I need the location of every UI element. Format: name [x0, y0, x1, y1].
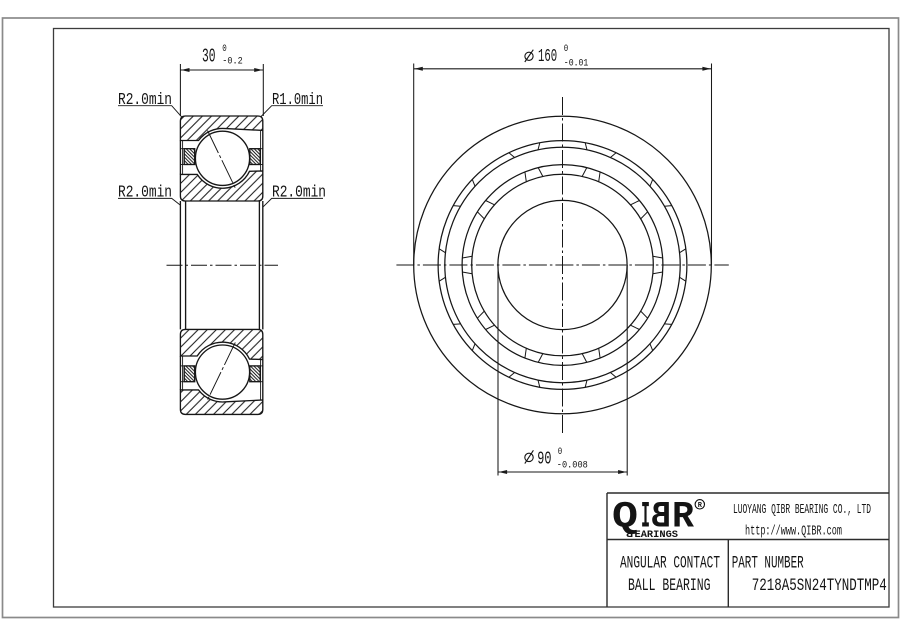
svg-text:ANGULAR CONTACT: ANGULAR CONTACT: [620, 554, 720, 574]
svg-text:30: 30: [202, 46, 216, 68]
svg-text:0: 0: [222, 43, 227, 55]
svg-text:0: 0: [564, 43, 569, 55]
svg-text:EARINGS: EARINGS: [635, 530, 679, 541]
svg-text:R2.0min: R2.0min: [272, 184, 326, 203]
svg-text:R2.0min: R2.0min: [118, 184, 172, 203]
svg-text:-0.008: -0.008: [557, 459, 588, 471]
svg-text:http://www.QIBR.com: http://www.QIBR.com: [745, 524, 842, 540]
svg-text:B: B: [626, 530, 633, 541]
svg-text:R2.0min: R2.0min: [118, 91, 172, 110]
svg-text:-0.01: -0.01: [564, 58, 589, 70]
svg-text:90: 90: [537, 449, 551, 470]
svg-text:PART NUMBER: PART NUMBER: [732, 554, 804, 574]
svg-text:-0.2: -0.2: [222, 55, 243, 67]
svg-text:R1.0min: R1.0min: [272, 91, 323, 110]
svg-text:LUOYANG QIBR BEARING CO., LTD: LUOYANG QIBR BEARING CO., LTD: [733, 502, 871, 518]
svg-text:0: 0: [558, 446, 563, 458]
svg-text:7218A5SN24TYNDTMP4: 7218A5SN24TYNDTMP4: [752, 576, 887, 596]
svg-text:BALL BEARING: BALL BEARING: [628, 576, 711, 596]
svg-text:160: 160: [538, 46, 557, 67]
